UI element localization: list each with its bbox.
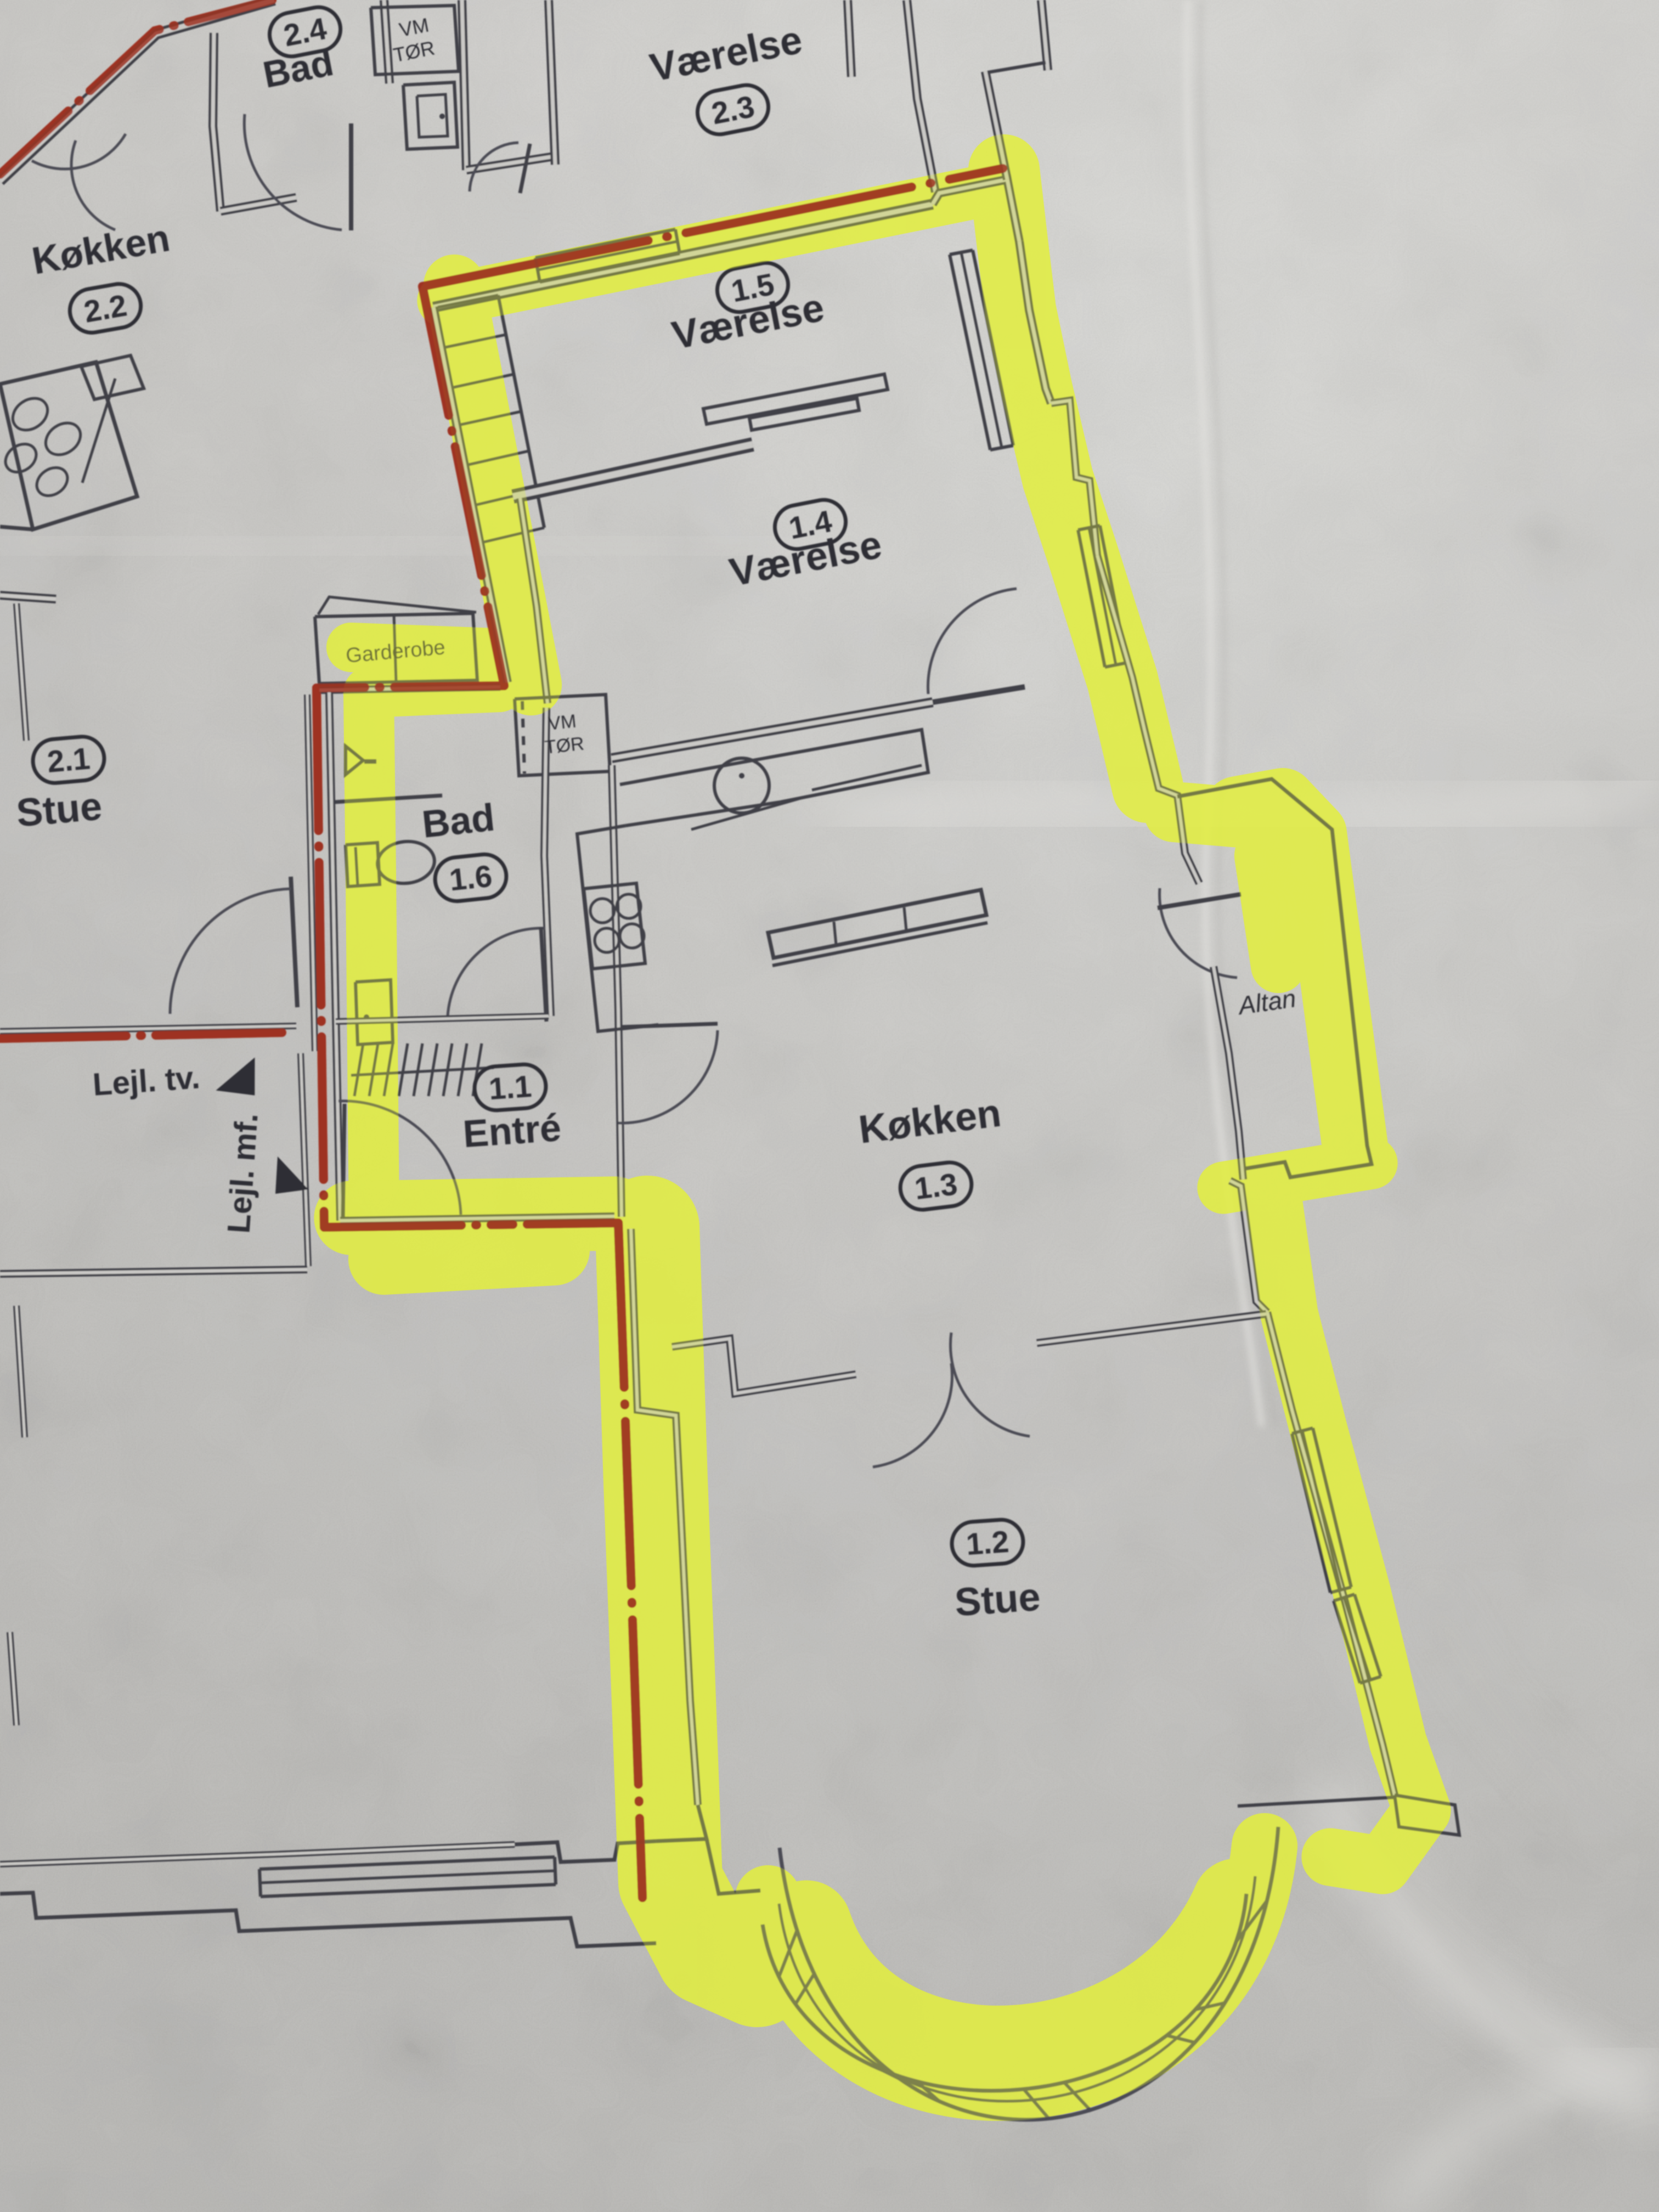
svg-text:1.6: 1.6 [448,859,494,898]
svg-text:1.2: 1.2 [965,1524,1010,1561]
svg-text:VM: VM [548,710,578,734]
svg-text:1.3: 1.3 [913,1166,960,1206]
svg-text:Lejl. tv.: Lejl. tv. [92,1059,201,1102]
svg-text:1.1: 1.1 [488,1069,533,1106]
svg-text:Stue: Stue [953,1575,1042,1625]
svg-text:2.2: 2.2 [81,287,129,329]
svg-text:TØR: TØR [544,733,585,758]
svg-text:2.1: 2.1 [46,741,91,779]
svg-text:Bad: Bad [420,795,497,845]
svg-text:Entré: Entré [461,1106,562,1155]
svg-text:Stue: Stue [15,784,104,835]
